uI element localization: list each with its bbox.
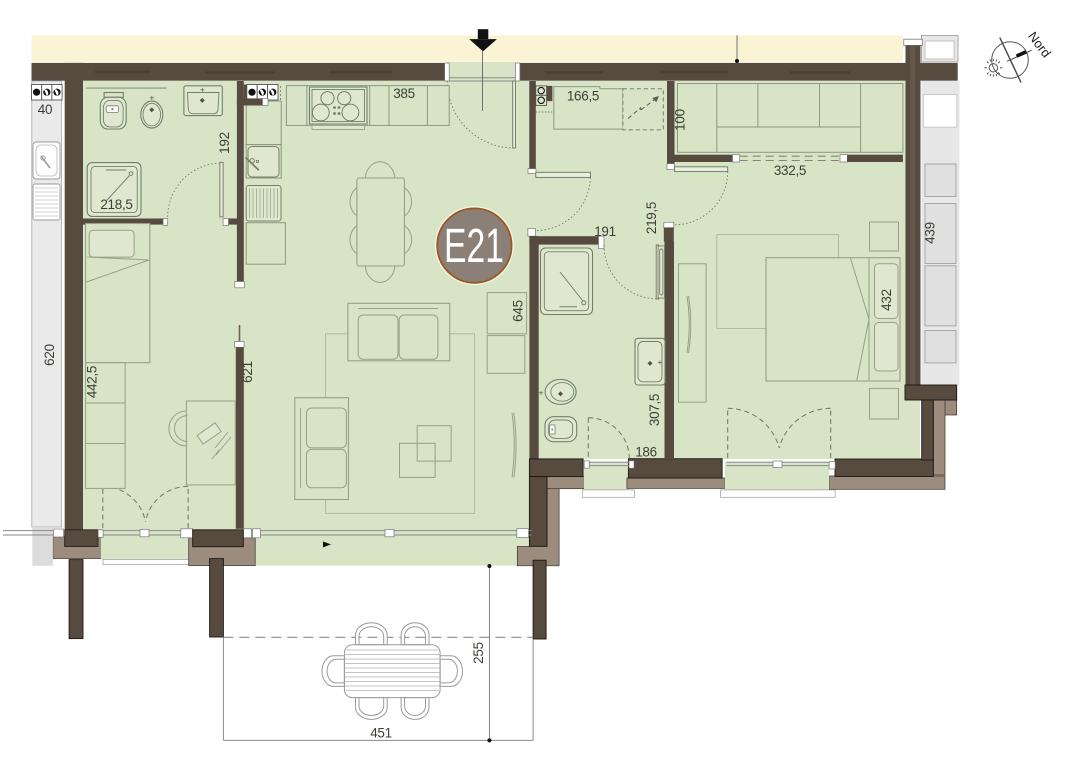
svg-text:191: 191 <box>594 224 616 239</box>
svg-text:40: 40 <box>38 102 52 117</box>
svg-text:332,5: 332,5 <box>774 163 806 178</box>
svg-text:192: 192 <box>217 132 232 154</box>
svg-text:451: 451 <box>370 726 392 741</box>
svg-text:+: + <box>200 85 205 95</box>
svg-text:218,5: 218,5 <box>100 197 132 212</box>
svg-text:432: 432 <box>879 289 894 311</box>
svg-text:100: 100 <box>673 109 688 131</box>
svg-text:+: + <box>149 93 154 103</box>
svg-text:385: 385 <box>393 86 415 101</box>
svg-text:Nord: Nord <box>1025 29 1054 61</box>
svg-text:186: 186 <box>635 445 657 460</box>
svg-text:621: 621 <box>240 361 255 383</box>
svg-text:620: 620 <box>42 344 57 366</box>
svg-text:645: 645 <box>511 300 526 322</box>
svg-text:219,5: 219,5 <box>644 202 659 234</box>
svg-text:442,5: 442,5 <box>85 366 100 398</box>
svg-text:+: + <box>658 357 663 367</box>
svg-text:439: 439 <box>923 222 938 244</box>
svg-text:+: + <box>539 388 544 398</box>
svg-text:255: 255 <box>471 642 486 664</box>
svg-text:E21: E21 <box>444 220 504 273</box>
svg-text:307,5: 307,5 <box>647 394 662 426</box>
svg-text:166,5: 166,5 <box>567 89 599 104</box>
